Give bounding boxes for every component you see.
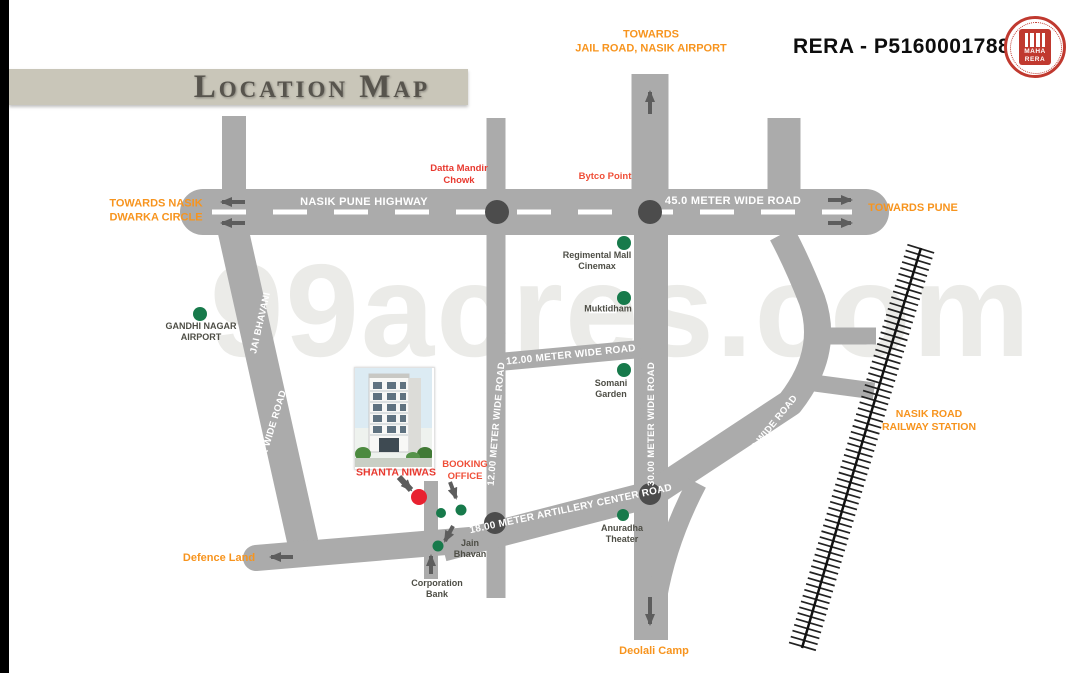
landmark-dot-booking-office-1 bbox=[436, 508, 446, 518]
road-rail-stub-lower bbox=[814, 383, 874, 391]
label-defence-land: Defence Land bbox=[183, 552, 255, 566]
road-label-45m: 45.0 METER WIDE ROAD bbox=[665, 195, 801, 209]
label-deolali-camp: Deolali Camp bbox=[619, 645, 689, 659]
project-building-photo bbox=[354, 367, 435, 470]
label-towards-jail-road: TOWARDS JAIL ROAD, NASIK AIRPORT bbox=[575, 28, 727, 56]
junction-dot bbox=[638, 200, 662, 224]
road-network bbox=[0, 0, 1081, 673]
label-booking-office: BOOKING OFFICE bbox=[442, 459, 487, 483]
landmark-label-jain-bhavan: Jain Bhavan bbox=[454, 538, 487, 561]
landmark-dot-gandhi-nagar-airport bbox=[193, 307, 207, 321]
project-label-shanta-niwas: SHANTA NIWAS bbox=[356, 466, 436, 479]
landmark-dot-booking-office-2 bbox=[456, 505, 467, 516]
landmark-label-somani-garden: Somani Garden bbox=[595, 378, 628, 401]
junction-dot bbox=[485, 200, 509, 224]
landmark-dot-regimental-mall bbox=[617, 236, 631, 250]
label-towards-nasik-dwarka: TOWARDS NASIK DWARKA CIRCLE bbox=[109, 197, 202, 225]
arrow-booking-office-icon bbox=[450, 482, 456, 498]
building-illustration bbox=[355, 368, 432, 467]
landmark-dot-jain-bhavan bbox=[433, 541, 444, 552]
location-map-page: Location Map RERA - P51600017884 MAHA RE… bbox=[0, 0, 1081, 673]
road-label-30m: 30.00 METER WIDE ROAD bbox=[646, 362, 658, 486]
landmark-label-gandhi-nagar-airport: GANDHI NAGAR AIRPORT bbox=[166, 321, 237, 344]
landmark-label-regimental-mall: Regimental Mall Cinemax bbox=[563, 250, 632, 273]
landmark-label-datta-mandir-chowk: Datta Mandir Chowk bbox=[430, 163, 488, 187]
label-towards-pune: TOWARDS PUNE bbox=[868, 202, 958, 216]
landmark-label-anuradha-theater: Anuradha Theater bbox=[601, 523, 643, 546]
project-dot-shanta-niwas bbox=[411, 489, 427, 505]
label-nasik-road-railway-station: NASIK ROAD RAILWAY STATION bbox=[882, 408, 976, 434]
landmark-label-bytco-point: Bytco Point bbox=[579, 171, 632, 183]
road-label-nasik-pune-highway: NASIK PUNE HIGHWAY bbox=[300, 196, 428, 210]
landmark-dot-anuradha-theater bbox=[617, 509, 629, 521]
landmark-label-muktidham: Muktidham bbox=[584, 303, 632, 314]
landmark-label-corporation-bank: Corporation Bank bbox=[411, 578, 463, 601]
landmark-dot-somani-garden bbox=[617, 363, 631, 377]
road-jai-bhavani bbox=[233, 230, 303, 543]
